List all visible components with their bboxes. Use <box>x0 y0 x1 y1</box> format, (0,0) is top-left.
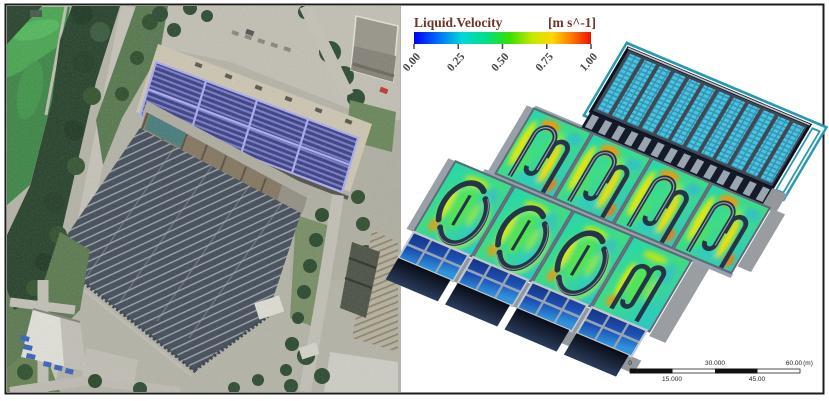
svg-text:(m): (m) <box>803 360 813 367</box>
svg-text:0: 0 <box>628 360 632 367</box>
svg-text:Liquid.Velocity: Liquid.Velocity <box>414 15 503 30</box>
svg-text:45.00: 45.00 <box>749 376 766 383</box>
svg-text:15.000: 15.000 <box>662 376 682 383</box>
svg-text:60.00: 60.00 <box>786 360 803 367</box>
svg-text:30.000: 30.000 <box>705 360 725 367</box>
svg-text:[m s^-1]: [m s^-1] <box>548 15 596 30</box>
